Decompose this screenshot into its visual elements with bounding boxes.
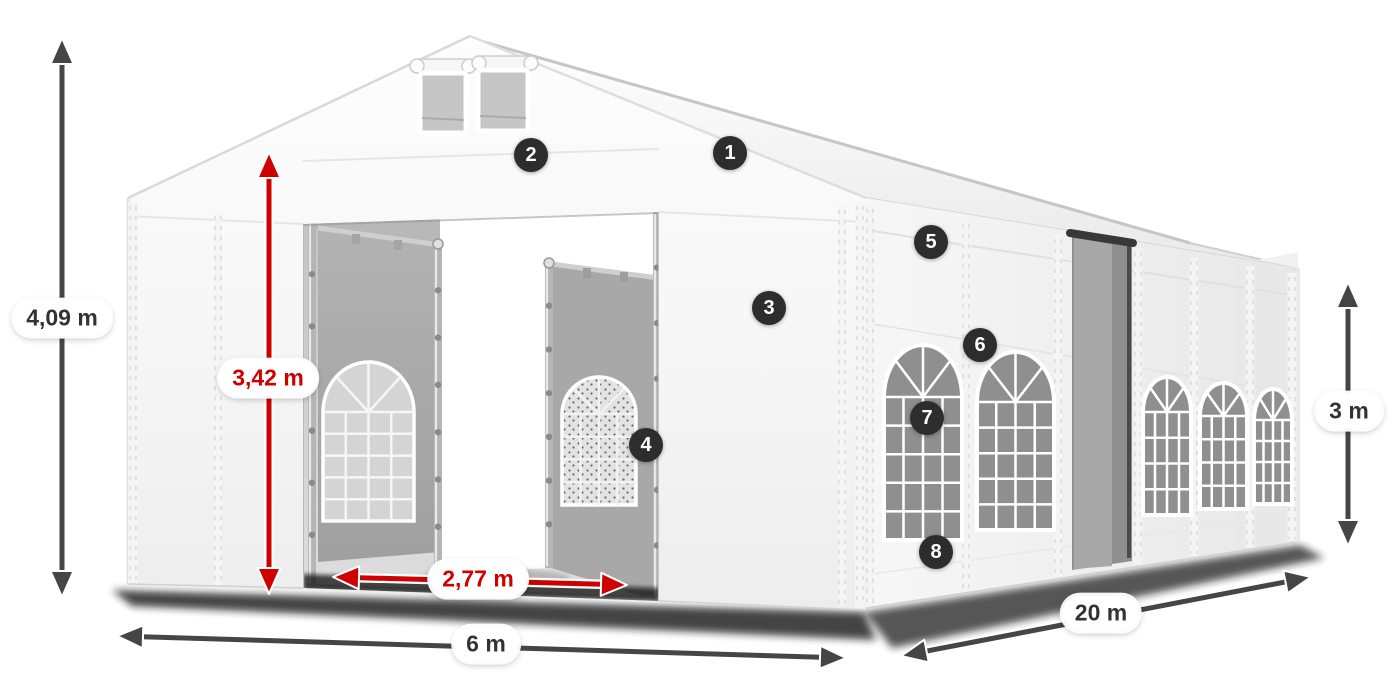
marker-5[interactable]: 5 [914,225,948,259]
total-height-label: 4,09 m [14,301,110,336]
inner-right-window [562,377,636,505]
entrance-height-label: 3,42 m [220,361,316,396]
gable-vent-right [472,56,538,131]
marker-3[interactable]: 3 [752,291,786,325]
side-window-3 [1143,377,1191,515]
gable-vent-left [410,59,476,133]
marker-2[interactable]: 2 [514,138,548,172]
marker-4[interactable]: 4 [629,428,663,462]
marker-8[interactable]: 8 [919,535,953,569]
marker-7[interactable]: 7 [910,401,944,435]
entrance-opening [303,206,660,601]
front-width-label: 6 m [454,627,518,662]
marker-6[interactable]: 6 [963,328,997,362]
side-window-4 [1200,383,1247,509]
tent-dimension-diagram: 4,09 m 3,42 m 2,77 m 6 m 20 m 3 m 1 2 3 … [0,0,1400,700]
entrance-width-label: 2,77 m [430,562,526,597]
marker-1[interactable]: 1 [713,136,747,170]
tent-illustration [0,0,1400,700]
side-height-label: 3 m [1317,394,1381,429]
inner-left-window [323,362,414,521]
side-door-opening [1070,232,1133,570]
side-window-2 [977,352,1054,530]
side-window-5 [1254,389,1292,504]
side-window-1 [884,345,962,540]
side-length-label: 20 m [1063,596,1139,631]
